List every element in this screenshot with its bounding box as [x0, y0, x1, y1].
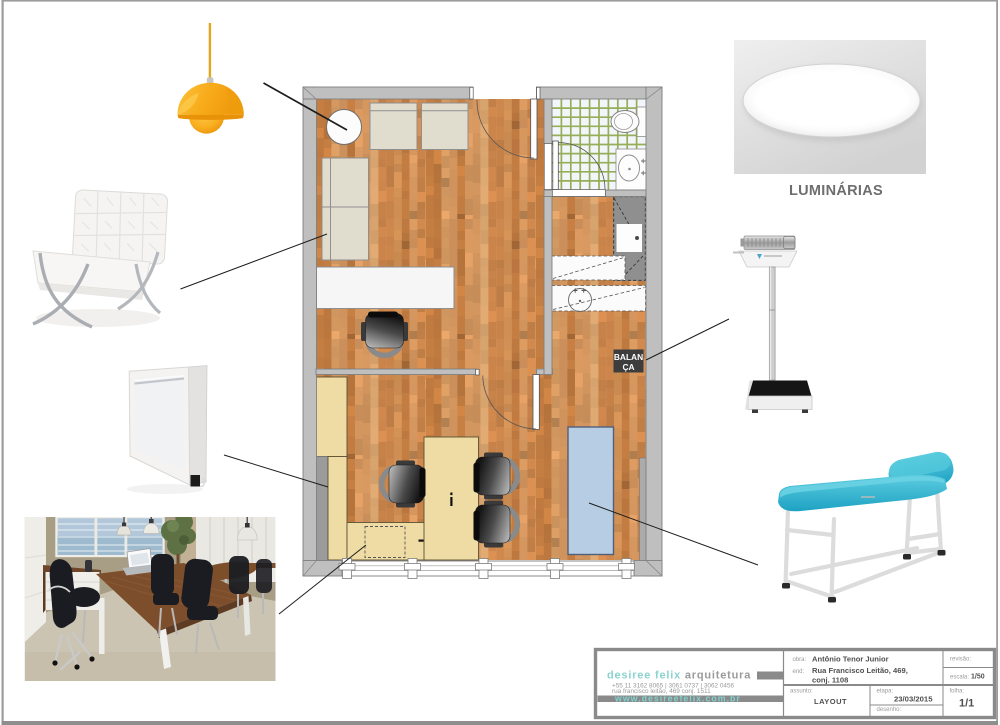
- svg-text:desiree felix arquitetura: desiree felix arquitetura: [607, 670, 751, 682]
- svg-text:ÇA: ÇA: [622, 362, 634, 372]
- svg-text:23/03/2015: 23/03/2015: [894, 695, 933, 704]
- svg-text:obra:: obra:: [793, 657, 807, 663]
- svg-text:Rua Francisco Leitão, 469,: Rua Francisco Leitão, 469,: [812, 666, 908, 675]
- svg-text:etapa:: etapa:: [877, 689, 894, 695]
- svg-text:LUMINÁRIAS: LUMINÁRIAS: [789, 182, 883, 199]
- svg-text:1/50: 1/50: [971, 674, 985, 681]
- svg-text:LAYOUT: LAYOUT: [814, 697, 847, 706]
- svg-text:escala:: escala:: [950, 675, 969, 681]
- svg-text:Antônio Tenor Junior: Antônio Tenor Junior: [812, 655, 889, 664]
- svg-text:end:: end:: [793, 669, 805, 675]
- svg-text:revisão:: revisão:: [950, 657, 971, 663]
- svg-text:folha:: folha:: [950, 689, 965, 695]
- svg-text:1/1: 1/1: [959, 698, 974, 710]
- svg-text:conj. 1108: conj. 1108: [812, 676, 848, 685]
- svg-text:desenho:: desenho:: [877, 707, 902, 713]
- svg-text:BALAN: BALAN: [614, 352, 643, 362]
- svg-text:www.desireefelix.com.br: www.desireefelix.com.br: [614, 694, 741, 704]
- svg-text:assunto:: assunto:: [790, 689, 813, 695]
